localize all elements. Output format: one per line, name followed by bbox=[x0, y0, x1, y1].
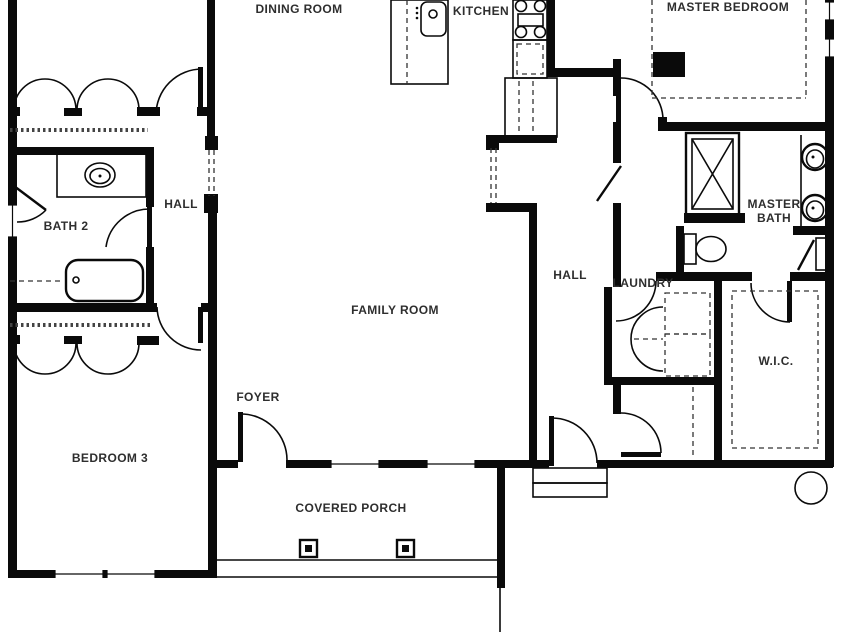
bath2-vanity bbox=[57, 153, 146, 197]
bedroom3-closet-doors bbox=[14, 343, 139, 374]
refrigerator-icon bbox=[505, 78, 557, 137]
bedroom2-closet-doors bbox=[14, 79, 139, 110]
back-door bbox=[549, 416, 597, 466]
cased-openings bbox=[209, 148, 496, 203]
bedroom3-door bbox=[157, 307, 203, 350]
bath2-left-door bbox=[14, 186, 46, 222]
kitchen-island bbox=[391, 0, 448, 84]
washer-dryer-icons bbox=[665, 293, 710, 376]
dishwasher-icon bbox=[513, 40, 547, 78]
interior-walls bbox=[8, 0, 833, 578]
shower-icon bbox=[686, 133, 739, 215]
wic-door bbox=[751, 281, 792, 322]
floor-plan: DINING ROOM KITCHEN MASTER BEDROOM HALL … bbox=[0, 0, 843, 632]
windows bbox=[8, 2, 834, 578]
master-bath-linen-door bbox=[798, 240, 814, 270]
bedroom3-label: BEDROOM 3 bbox=[72, 451, 148, 465]
bath2-label: BATH 2 bbox=[44, 219, 89, 233]
master-bedroom-door bbox=[616, 78, 663, 122]
bedroom2-hall-door bbox=[156, 67, 203, 115]
tray-ceiling-outline bbox=[652, 0, 806, 98]
wic-label: W.I.C. bbox=[758, 354, 793, 368]
kitchen-label: KITCHEN bbox=[453, 4, 509, 18]
toilet-icon bbox=[684, 234, 726, 264]
vestibule-door bbox=[621, 413, 661, 457]
back-door-steps bbox=[533, 468, 607, 497]
master-bedroom-label: MASTER BEDROOM bbox=[667, 0, 789, 14]
master-bath-line1: MASTER bbox=[747, 197, 800, 211]
master-bath-line2: BATH bbox=[757, 211, 791, 225]
range-icon bbox=[513, 0, 547, 40]
hall-closet-door bbox=[597, 166, 621, 201]
yard-circle-marker bbox=[795, 472, 827, 504]
laundry-label: LAUNDRY bbox=[612, 276, 673, 290]
bath2-door bbox=[106, 207, 152, 247]
covered-porch-outline bbox=[216, 467, 500, 632]
dining-room-label: DINING ROOM bbox=[255, 2, 342, 16]
island-sink-icon bbox=[421, 2, 446, 36]
hall-left-label: HALL bbox=[164, 197, 198, 211]
hall-right-label: HALL bbox=[553, 268, 587, 282]
porch-posts bbox=[300, 540, 414, 557]
wic-shelving bbox=[693, 291, 818, 455]
covered-porch-label: COVERED PORCH bbox=[295, 501, 406, 515]
master-bath-label: MASTER BATH bbox=[747, 197, 800, 225]
family-room-label: FAMILY ROOM bbox=[351, 303, 439, 317]
foyer-label: FOYER bbox=[236, 390, 279, 404]
bathtub-icon bbox=[10, 260, 143, 301]
front-door bbox=[238, 412, 287, 462]
